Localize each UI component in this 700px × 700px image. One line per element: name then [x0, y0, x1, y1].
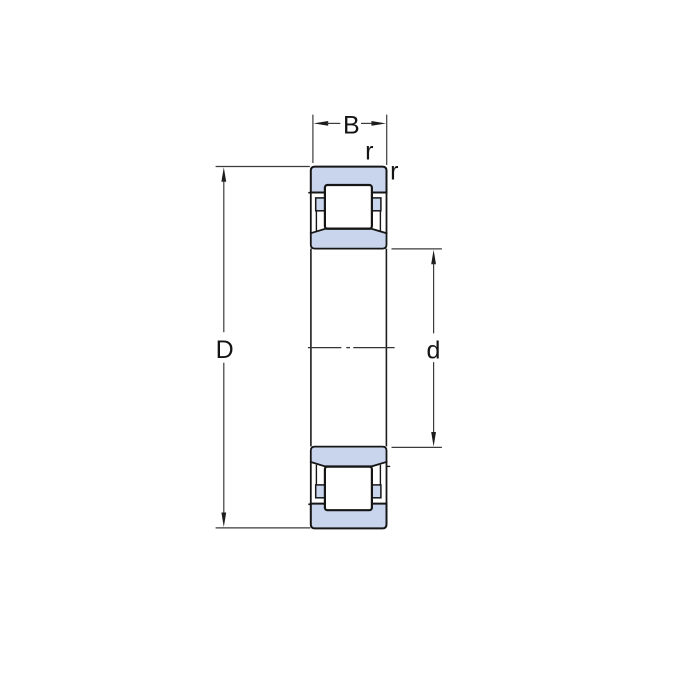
svg-text:D: D	[216, 336, 234, 364]
svg-text:d: d	[426, 337, 440, 365]
svg-text:r: r	[390, 157, 398, 185]
svg-text:B: B	[343, 112, 360, 140]
svg-text:r: r	[365, 137, 373, 165]
